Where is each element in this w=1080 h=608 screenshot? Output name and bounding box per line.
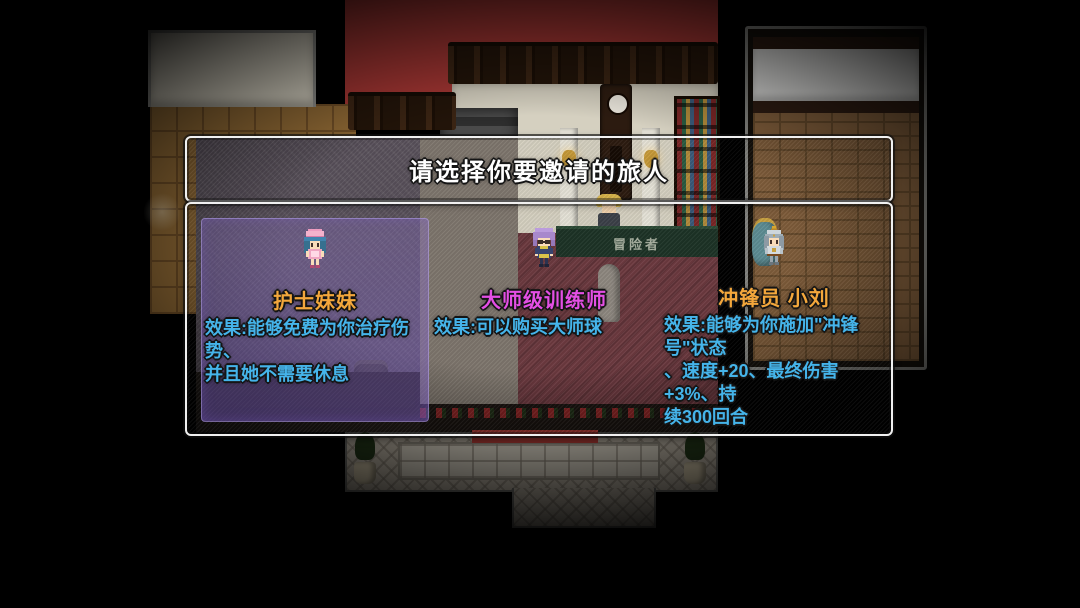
plant-foliage: [685, 432, 705, 460]
right-building-trim-mid: [753, 101, 919, 113]
lamp-glow: [144, 192, 180, 232]
roof-balustrade-left: [348, 92, 456, 130]
option-description: 效果:能够免费为你治疗伤势、 并且她不需要休息: [202, 317, 428, 386]
nurse-sprite: [298, 227, 332, 275]
right-building-white-wall: [753, 49, 919, 101]
roof-balustrade: [448, 42, 718, 84]
plant-pot: [684, 462, 706, 484]
option-name: 冲锋员 小刘: [718, 282, 830, 306]
option-nurse[interactable]: 护士妹妹 效果:能够免费为你治疗伤势、 并且她不需要休息: [201, 218, 429, 422]
game-screen: 冒险者 请选择你要邀请的旅人: [0, 0, 1080, 608]
desc-line: 效果:能够免费为你治疗伤势、: [205, 317, 425, 363]
trainer-sprite: [527, 226, 561, 274]
stone-path: [512, 488, 656, 528]
plant-pot: [354, 462, 376, 484]
plant-foliage: [355, 432, 375, 460]
knight-sprite: [757, 226, 791, 272]
option-description: 效果:能够为你施加"冲锋号"状态 、速度+20、最终伤害+3%、持 续300回合: [661, 314, 887, 429]
potted-plant-right: [680, 432, 710, 486]
desc-line: 、速度+20、最终伤害+3%、持: [664, 360, 884, 406]
pavement-stone-inlay: [398, 442, 660, 480]
option-charger-xiaoliu[interactable]: 冲锋员 小刘 效果:能够为你施加"冲锋号"状态 、速度+20、最终伤害+3%、持…: [661, 218, 887, 420]
option-name: 大师级训练师: [481, 284, 607, 308]
left-building-upper-wall: [148, 30, 316, 107]
dialog-choice-window: 护士妹妹 效果:能够免费为你治疗伤势、 并且她不需要休息: [185, 202, 893, 436]
clock-face: [607, 93, 629, 115]
potted-plant-left: [350, 432, 380, 486]
dialog-title-window: 请选择你要邀请的旅人: [185, 136, 893, 202]
option-description: 效果:可以购买大师球: [431, 316, 657, 339]
desc-line: 效果:能够为你施加"冲锋号"状态: [664, 314, 884, 360]
desc-line: 效果:可以购买大师球: [434, 316, 654, 339]
right-building-trim-top: [753, 37, 919, 49]
option-name: 护士妹妹: [273, 285, 357, 309]
dialog-title: 请选择你要邀请的旅人: [187, 138, 891, 200]
option-master-trainer[interactable]: 大师级训练师 效果:可以购买大师球: [431, 218, 657, 420]
desc-line: 并且她不需要休息: [205, 363, 425, 386]
desc-line: 续300回合: [664, 406, 884, 429]
